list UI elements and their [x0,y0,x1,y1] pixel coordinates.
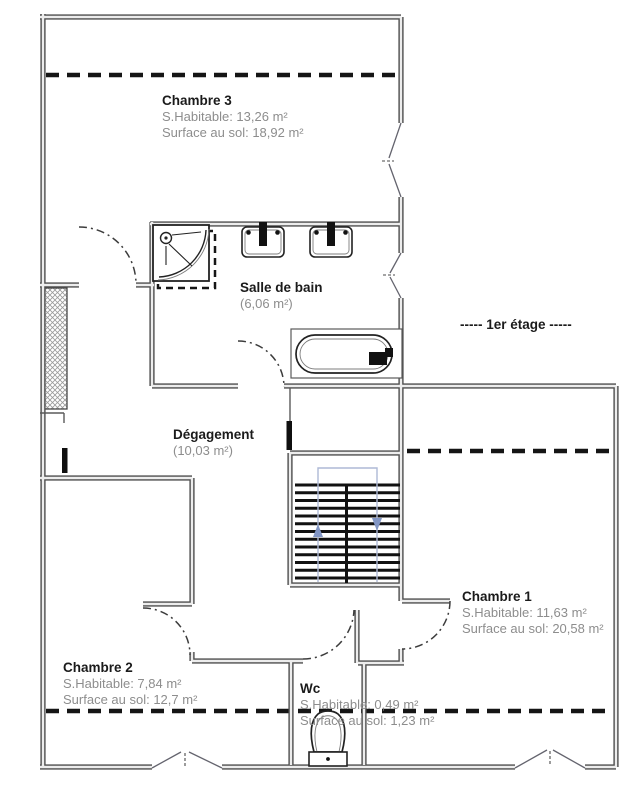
attic-dashed-lines [46,75,611,711]
door-arc-salle-de-bain [238,341,284,387]
floor-plan: Chambre 3 S.Habitable: 13,26 m² Surface … [0,0,640,795]
sink-left [242,222,284,257]
shower [153,225,215,288]
chimney-hatch [44,288,67,409]
door-arc-chambre1 [402,601,450,649]
faucet-icon [327,222,335,246]
faucet-icon [259,222,267,246]
door-arc-wc [303,610,354,659]
door-arc-chambre2 [143,608,190,655]
window-symbols [152,123,585,768]
stair-treads [295,485,400,583]
floor-plan-drawing [0,0,640,795]
walls [40,14,616,767]
door-arc-chambre3 [79,227,136,284]
staircase [295,468,400,583]
window-icon-bottom-left [152,752,222,768]
window-icon-bottom-right [515,750,585,768]
window-icon-right-upper [382,123,401,197]
bathtub [291,329,402,378]
window-icon-right-lower [383,253,401,298]
sink-right [310,222,352,257]
door-jamb-stair [287,421,293,450]
floor-level-label: ----- 1er étage ----- [460,317,572,332]
door-arcs [79,227,450,659]
door-leaf-corridor [62,448,68,473]
toilet [309,711,347,766]
bathtub-faucet-icon [369,352,387,365]
